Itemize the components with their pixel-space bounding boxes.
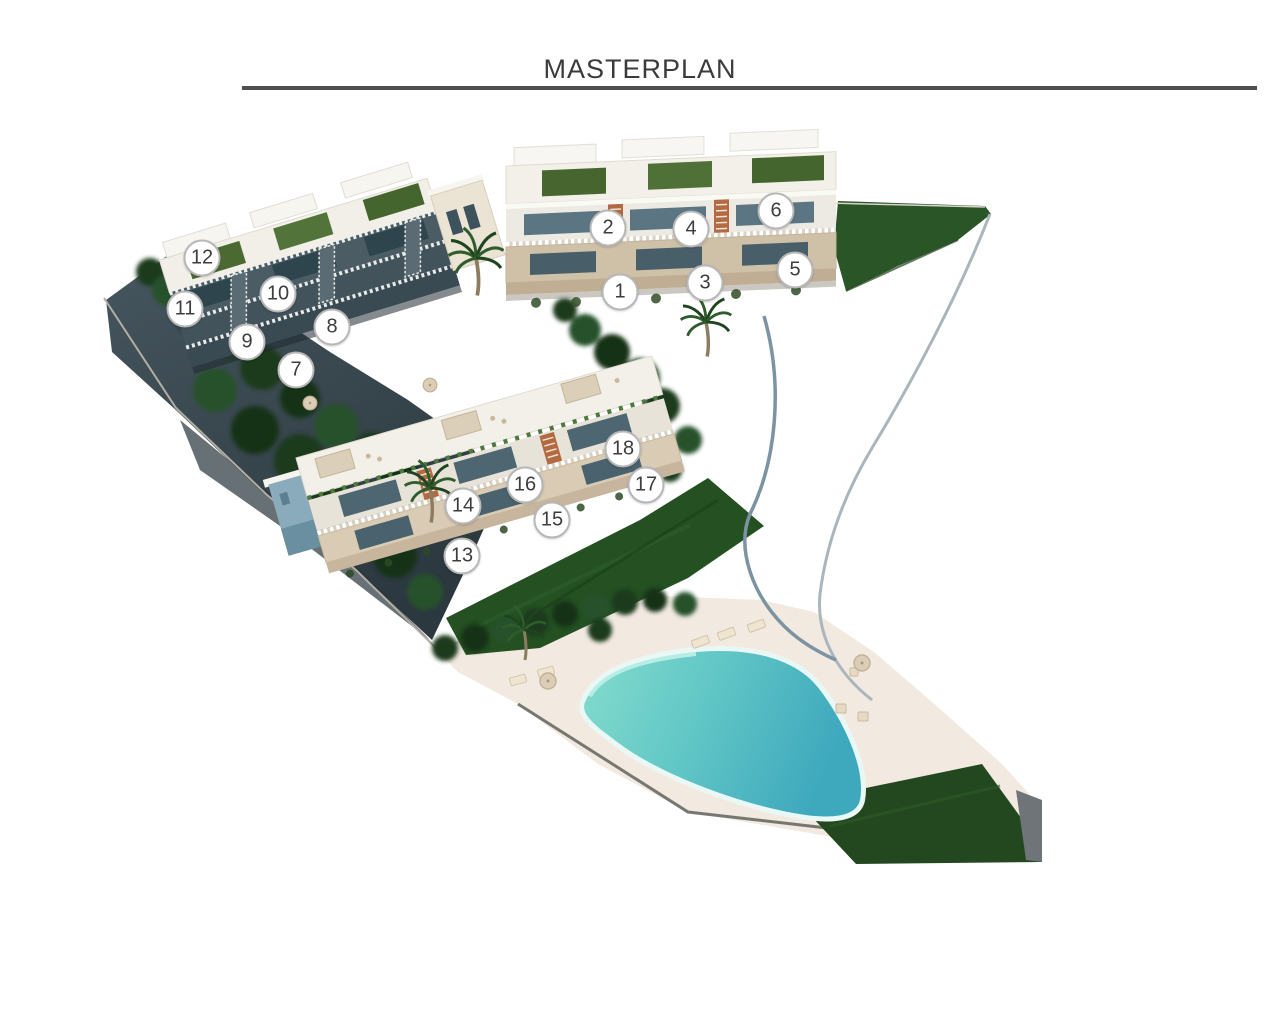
unit-marker-18[interactable]: 18 xyxy=(605,431,642,468)
parasol-icon xyxy=(423,378,437,392)
masterplan-page: MASTERPLAN xyxy=(0,0,1280,1024)
unit-marker-7[interactable]: 7 xyxy=(278,352,315,389)
unit-marker-13[interactable]: 13 xyxy=(444,538,481,575)
unit-marker-4[interactable]: 4 xyxy=(673,211,710,248)
unit-marker-11[interactable]: 11 xyxy=(167,291,204,328)
unit-marker-9[interactable]: 9 xyxy=(229,324,266,361)
unit-marker-8[interactable]: 8 xyxy=(314,309,351,346)
unit-marker-12[interactable]: 12 xyxy=(184,240,221,277)
unit-marker-10[interactable]: 10 xyxy=(260,276,297,313)
unit-marker-5[interactable]: 5 xyxy=(777,252,814,289)
unit-marker-6[interactable]: 6 xyxy=(758,193,795,230)
site-render xyxy=(0,0,1280,1024)
unit-marker-1[interactable]: 1 xyxy=(602,274,639,311)
parasol-icon xyxy=(303,396,317,410)
unit-marker-2[interactable]: 2 xyxy=(590,210,627,247)
unit-marker-17[interactable]: 17 xyxy=(628,467,665,504)
parasol-icon xyxy=(540,673,556,689)
unit-marker-3[interactable]: 3 xyxy=(687,265,724,302)
grass-wedge-top-right xyxy=(834,201,991,291)
unit-marker-16[interactable]: 16 xyxy=(507,467,544,504)
palm-tree-icon xyxy=(681,294,732,356)
parasol-icon xyxy=(854,655,870,671)
unit-marker-14[interactable]: 14 xyxy=(445,488,482,525)
unit-marker-15[interactable]: 15 xyxy=(534,502,571,539)
